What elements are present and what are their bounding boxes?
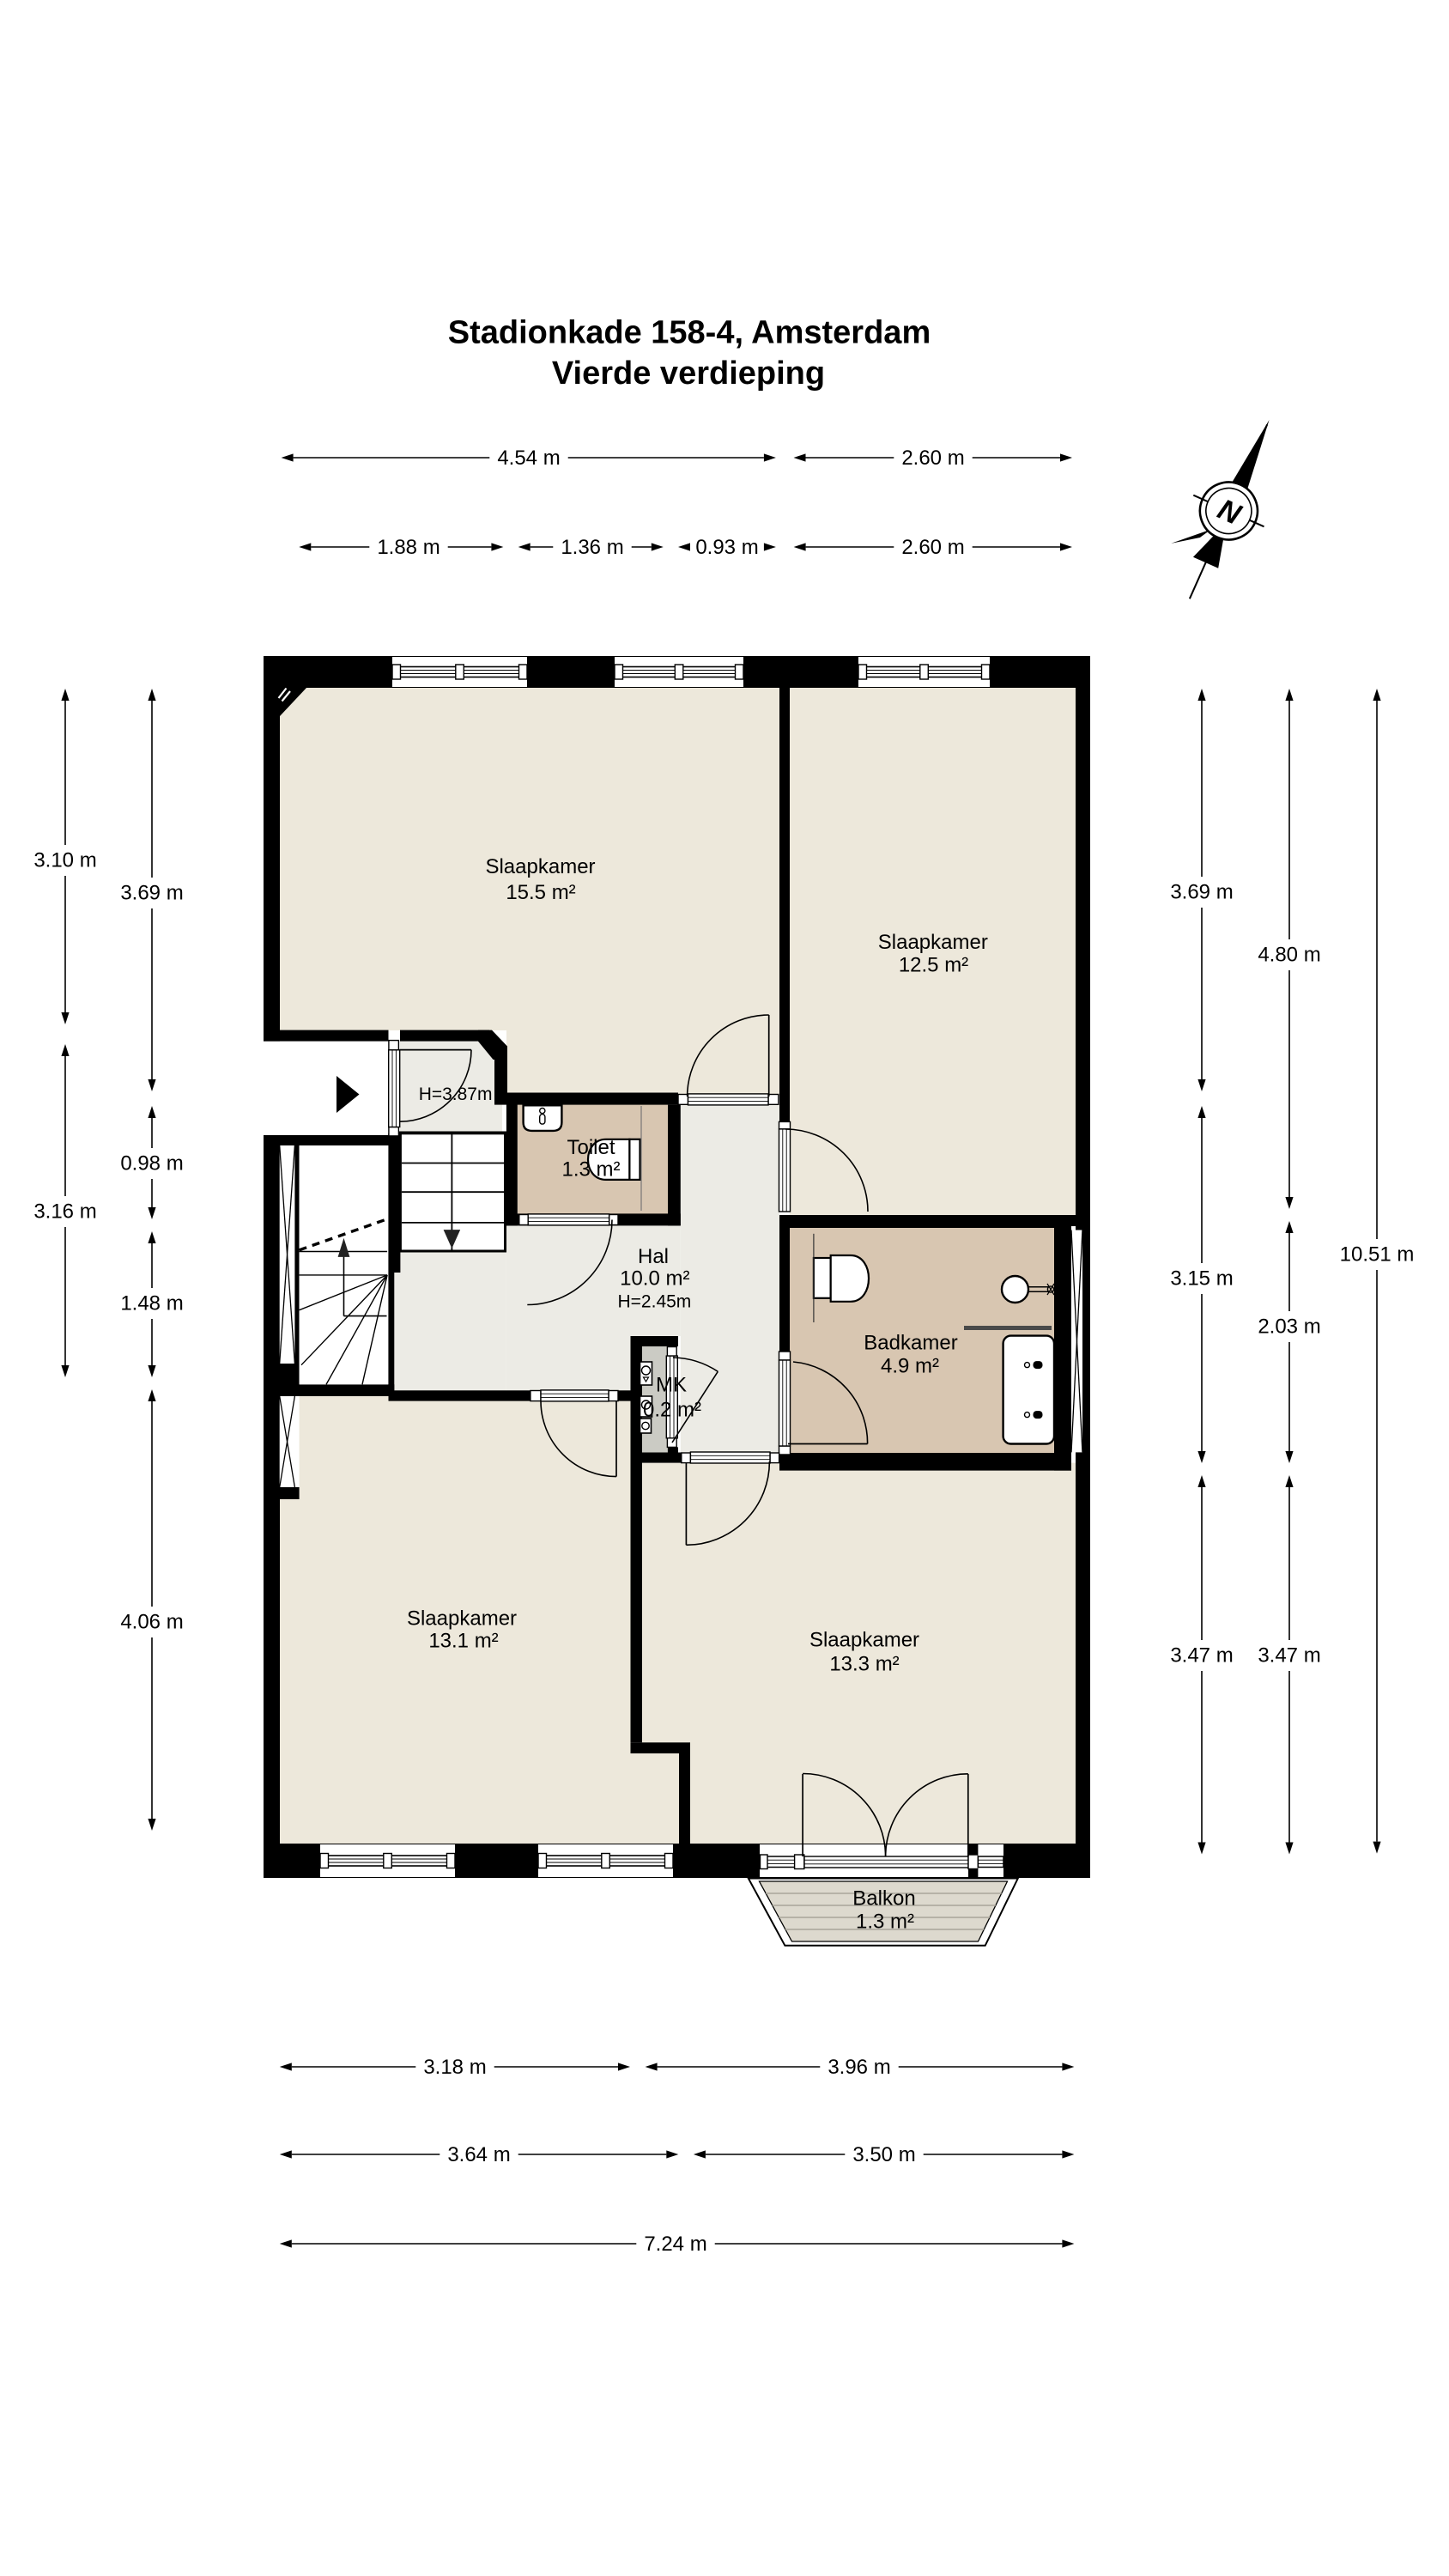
svg-text:10.51 m: 10.51 m xyxy=(1340,1243,1415,1267)
svg-text:3.18 m: 3.18 m xyxy=(423,2056,486,2079)
svg-text:13.1 m²: 13.1 m² xyxy=(428,1630,498,1653)
svg-text:3.16 m: 3.16 m xyxy=(33,1200,96,1224)
svg-text:1.3 m²: 1.3 m² xyxy=(561,1158,620,1182)
svg-text:0.93 m: 0.93 m xyxy=(695,536,758,559)
svg-text:2.03 m: 2.03 m xyxy=(1258,1315,1320,1339)
svg-text:Balkon: Balkon xyxy=(852,1887,915,1911)
svg-text:H=2.45m: H=2.45m xyxy=(618,1292,692,1312)
svg-text:3.96 m: 3.96 m xyxy=(828,2056,890,2079)
svg-text:Slaapkamer: Slaapkamer xyxy=(407,1607,517,1631)
svg-text:Stadionkade 158-4, Amsterdam: Stadionkade 158-4, Amsterdam xyxy=(448,315,931,351)
svg-text:1.3 m²: 1.3 m² xyxy=(856,1911,914,1934)
svg-text:Slaapkamer: Slaapkamer xyxy=(809,1629,919,1652)
svg-text:Slaapkamer: Slaapkamer xyxy=(878,931,988,954)
svg-text:15.5 m²: 15.5 m² xyxy=(506,881,575,904)
svg-text:Hal: Hal xyxy=(638,1245,669,1268)
svg-text:4.80 m: 4.80 m xyxy=(1258,944,1320,967)
svg-text:4.9 m²: 4.9 m² xyxy=(881,1355,939,1378)
svg-text:H=3.87m: H=3.87m xyxy=(419,1084,493,1104)
svg-text:3.47 m: 3.47 m xyxy=(1258,1644,1320,1668)
svg-text:3.69 m: 3.69 m xyxy=(120,882,183,905)
svg-text:Badkamer: Badkamer xyxy=(864,1332,957,1355)
svg-text:3.10 m: 3.10 m xyxy=(33,849,96,872)
svg-text:7.24 m: 7.24 m xyxy=(644,2233,706,2256)
svg-text:1.48 m: 1.48 m xyxy=(120,1292,183,1315)
svg-text:10.0 m²: 10.0 m² xyxy=(620,1267,689,1291)
svg-text:2.60 m: 2.60 m xyxy=(901,447,964,470)
svg-text:4.54 m: 4.54 m xyxy=(497,447,560,470)
svg-text:3.69 m: 3.69 m xyxy=(1170,881,1233,904)
svg-text:0.2 m²: 0.2 m² xyxy=(643,1399,701,1422)
svg-text:4.06 m: 4.06 m xyxy=(120,1611,183,1634)
svg-text:12.5 m²: 12.5 m² xyxy=(899,954,968,977)
svg-text:Slaapkamer: Slaapkamer xyxy=(485,855,595,878)
svg-text:3.47 m: 3.47 m xyxy=(1170,1644,1233,1668)
svg-text:0.98 m: 0.98 m xyxy=(120,1152,183,1176)
svg-text:13.3 m²: 13.3 m² xyxy=(829,1653,899,1676)
svg-text:2.60 m: 2.60 m xyxy=(901,536,964,559)
svg-text:MK: MK xyxy=(656,1374,687,1397)
svg-text:3.15 m: 3.15 m xyxy=(1170,1267,1233,1291)
svg-text:1.36 m: 1.36 m xyxy=(561,536,623,559)
svg-text:Vierde verdieping: Vierde verdieping xyxy=(552,355,825,392)
svg-text:Toilet: Toilet xyxy=(567,1136,615,1159)
svg-text:3.64 m: 3.64 m xyxy=(447,2143,510,2166)
svg-text:3.50 m: 3.50 m xyxy=(852,2143,915,2166)
svg-text:1.88 m: 1.88 m xyxy=(377,536,440,559)
